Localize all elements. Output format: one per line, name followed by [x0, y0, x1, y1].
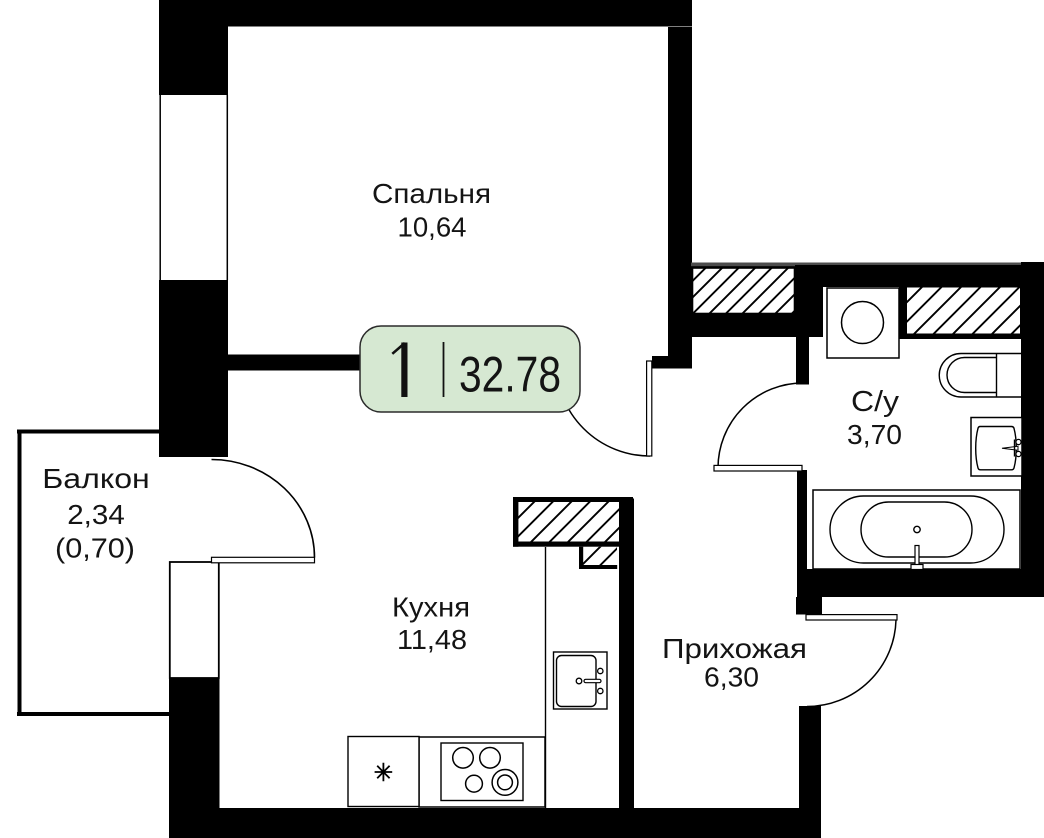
- svg-text:Прихожая: Прихожая: [662, 633, 807, 664]
- svg-text:3,70: 3,70: [847, 419, 902, 450]
- svg-text:Балкон: Балкон: [42, 463, 150, 494]
- svg-text:(0,70): (0,70): [55, 533, 135, 564]
- svg-text:10,64: 10,64: [398, 212, 467, 243]
- svg-text:6,30: 6,30: [704, 662, 759, 693]
- svg-text:2,34: 2,34: [67, 499, 125, 530]
- svg-text:Кухня: Кухня: [392, 592, 470, 623]
- svg-text:11,48: 11,48: [397, 624, 467, 655]
- svg-text:С/у: С/у: [851, 386, 900, 418]
- svg-text:32.78: 32.78: [459, 347, 561, 403]
- svg-text:Спальня: Спальня: [372, 178, 491, 209]
